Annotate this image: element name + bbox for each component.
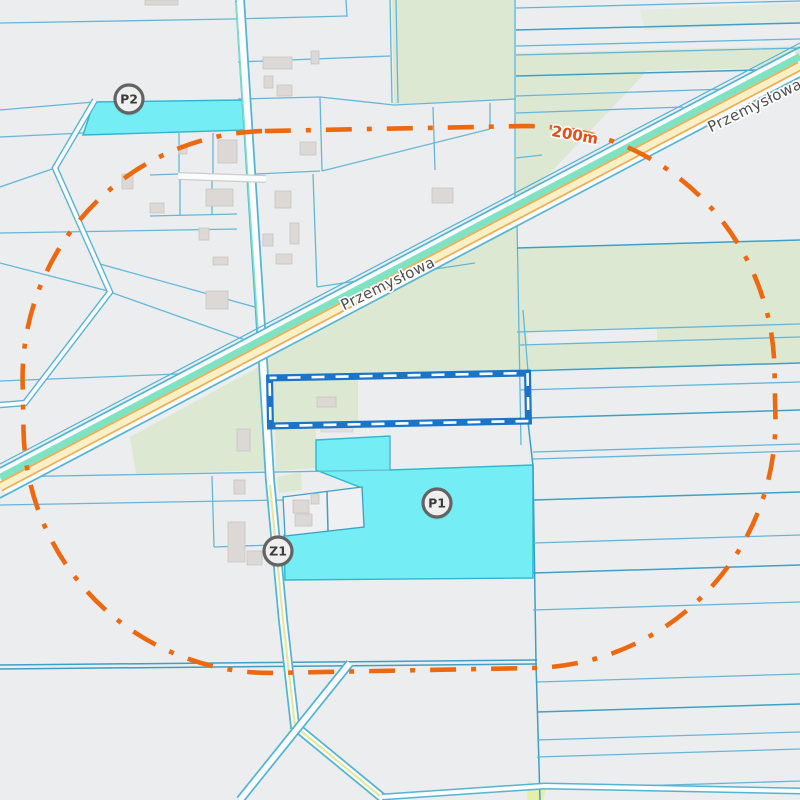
marker-p2[interactable]: P2: [114, 85, 144, 116]
svg-text:P2: P2: [120, 92, 138, 107]
map-canvas[interactable]: P2 Z1 P1 Przemysłowa Przemysłowa 200m: [0, 0, 800, 800]
svg-text:P1: P1: [428, 496, 446, 511]
marker-p1[interactable]: P1: [422, 489, 452, 520]
marker-z1[interactable]: Z1: [263, 537, 293, 568]
parcel-p2: [83, 100, 247, 135]
svg-text:Z1: Z1: [269, 544, 287, 559]
map-svg[interactable]: P2 Z1 P1 Przemysłowa Przemysłowa 200m: [0, 0, 800, 800]
